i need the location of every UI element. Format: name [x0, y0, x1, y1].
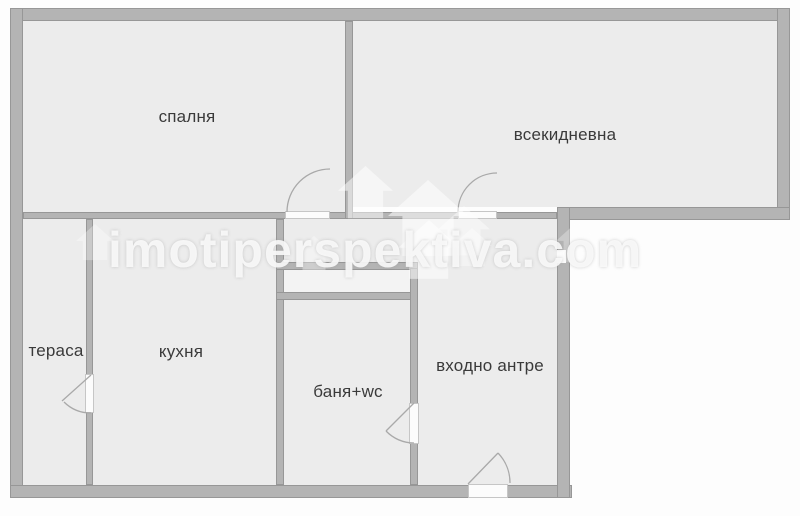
wall-outer-left — [10, 8, 23, 498]
wall-duct-bottom — [276, 292, 418, 300]
bathroom-door-leaf — [409, 403, 419, 444]
room-label-kitchen: кухня — [159, 342, 203, 362]
watermark-text: imotiperspektiva.com — [108, 221, 642, 279]
floor-plan: imotiperspektiva.com спалня всекидневна … — [0, 0, 800, 516]
room-label-bathroom: баня+wc — [313, 382, 383, 402]
room-label-living-room: всекидневна — [514, 125, 617, 145]
wall-terrace-kitchen — [86, 219, 93, 485]
wall-hall-left — [410, 268, 418, 485]
room-label-terrace: тераса — [28, 341, 83, 361]
terrace-door-leaf — [85, 374, 94, 413]
room-label-entrance-hall: входно антре — [436, 356, 544, 376]
wall-living-room-bottom — [557, 207, 790, 220]
room-living-room — [353, 21, 777, 207]
wall-bedroom-living-divider — [345, 21, 353, 219]
wall-outer-right — [777, 8, 790, 220]
entrance-door-leaf — [468, 484, 508, 498]
wall-outer-top — [10, 8, 790, 21]
bedroom-door-leaf — [285, 211, 330, 219]
living-room-door-leaf — [458, 211, 497, 219]
room-label-bedroom: спалня — [159, 107, 216, 127]
